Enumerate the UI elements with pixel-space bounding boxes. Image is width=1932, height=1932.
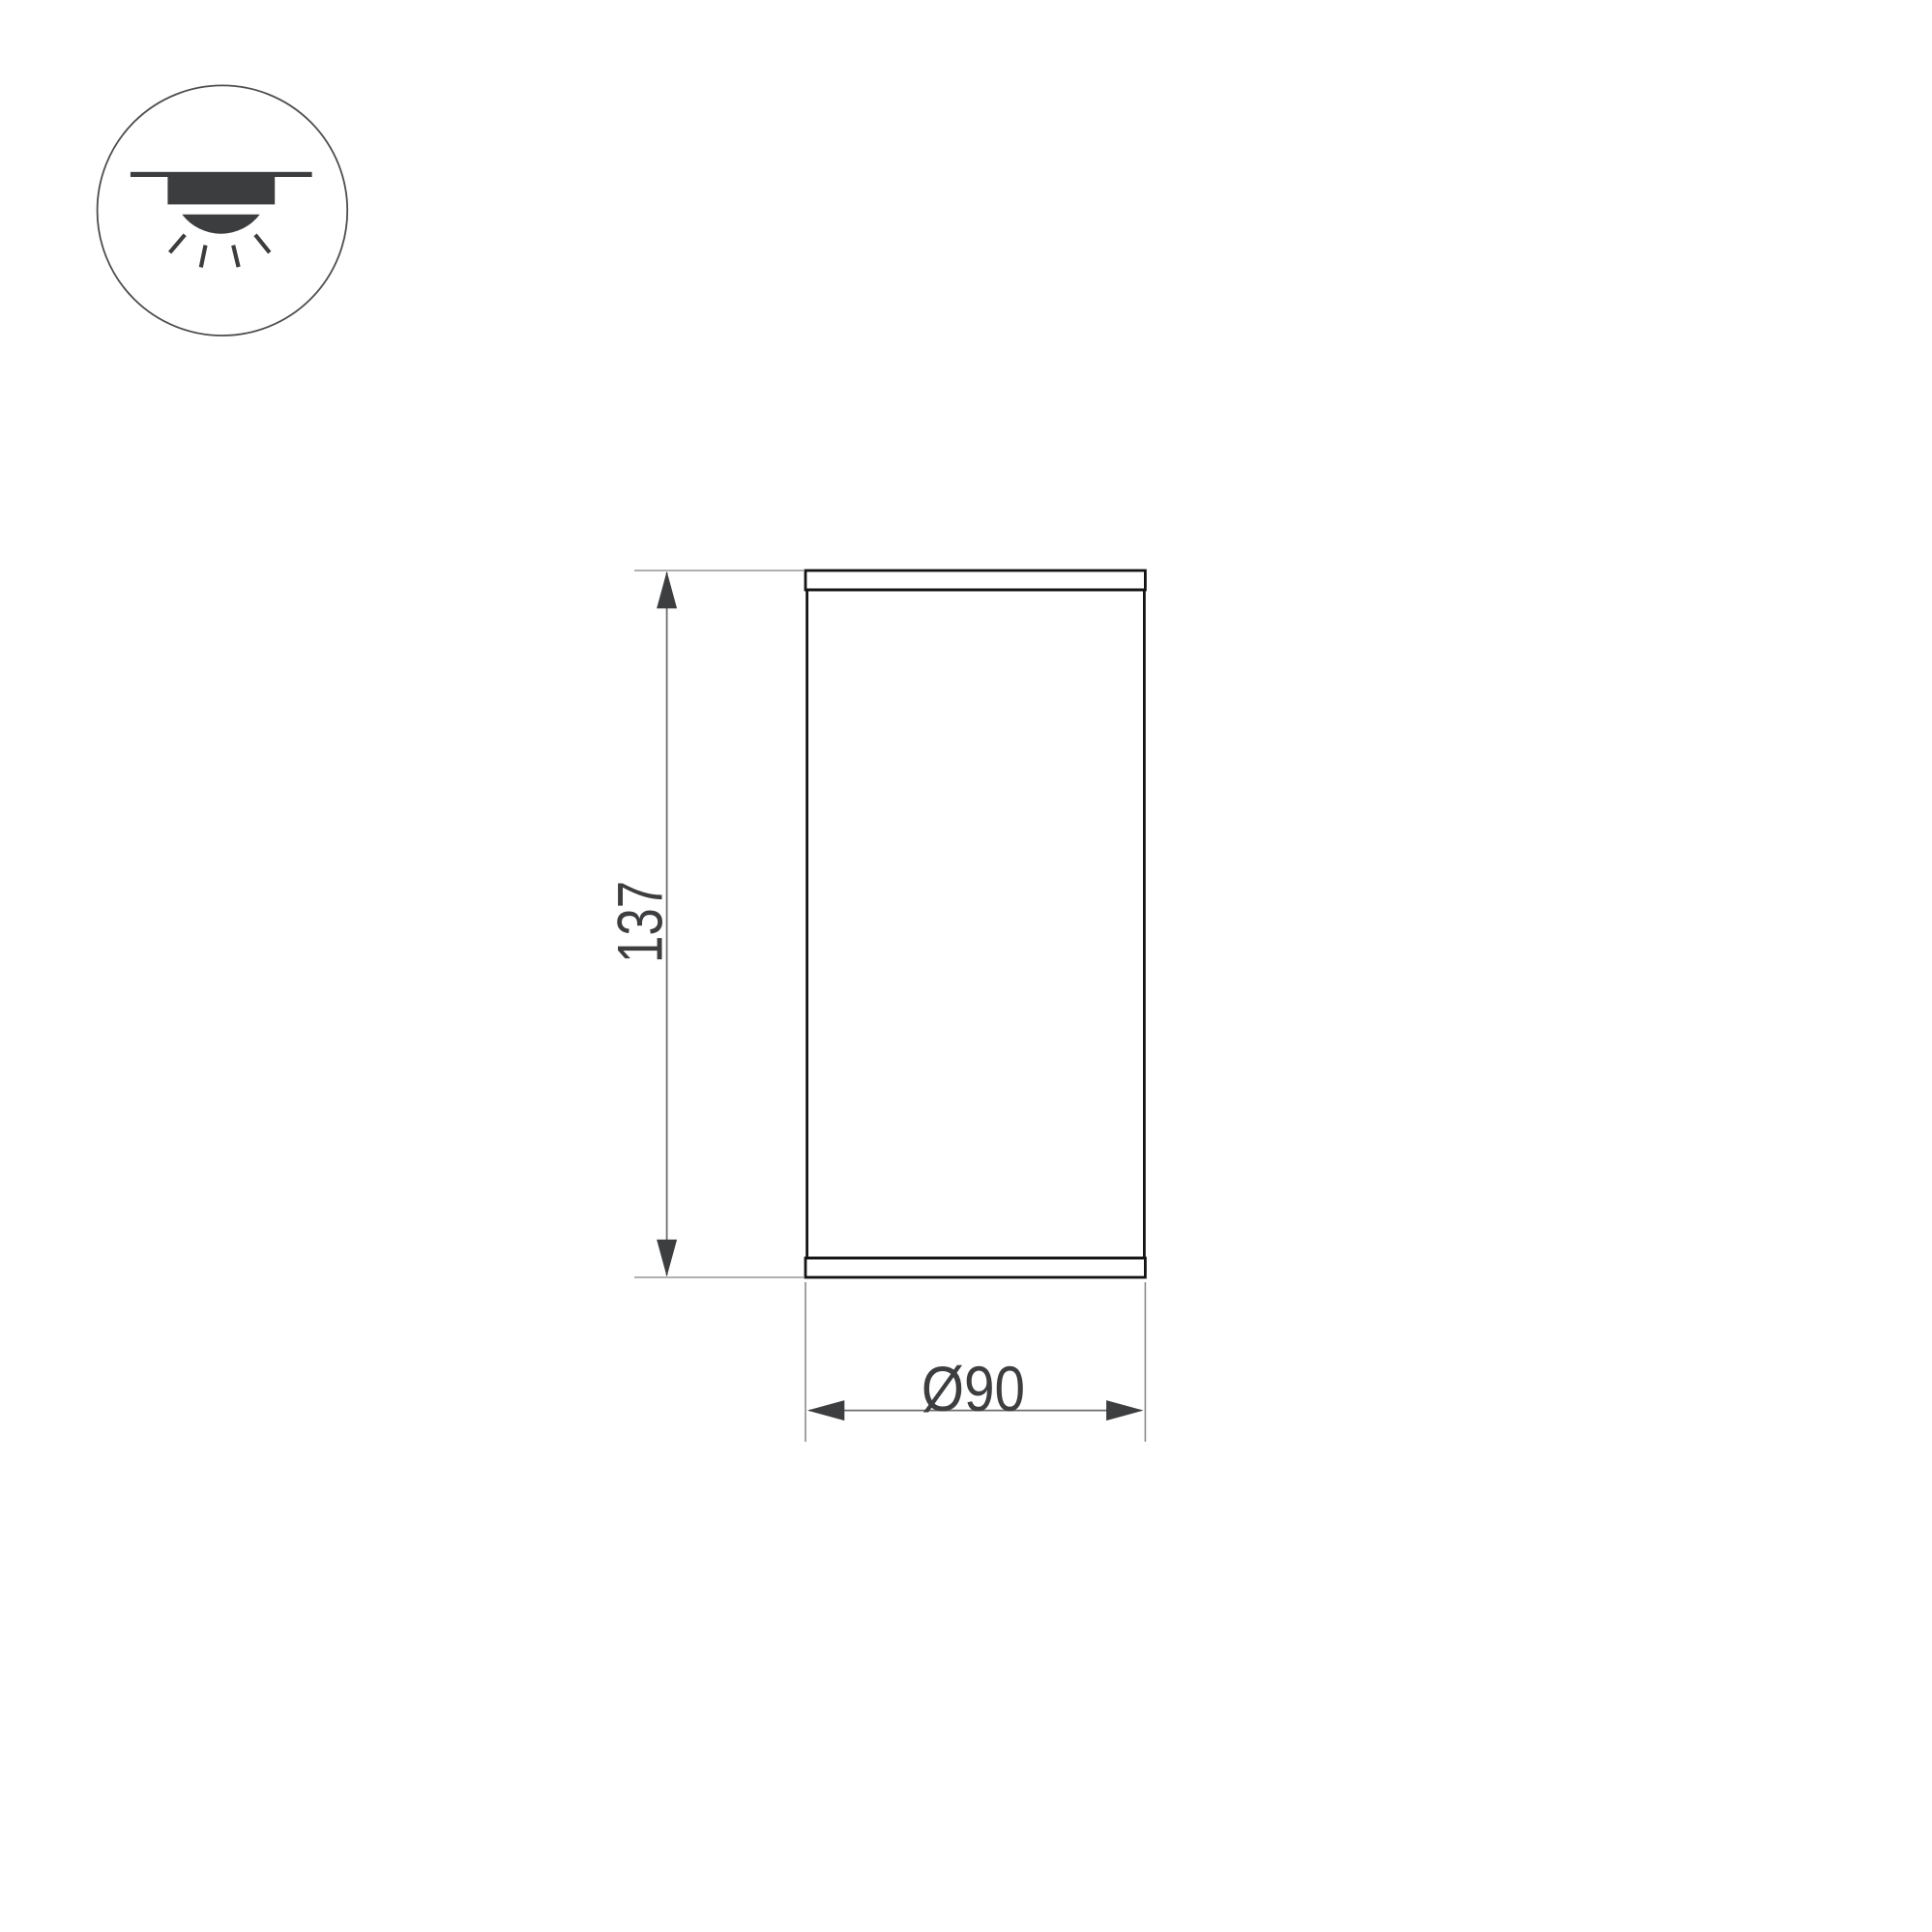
svg-text:Ø90: Ø90 [922,1354,1025,1425]
svg-text:137: 137 [605,881,676,963]
